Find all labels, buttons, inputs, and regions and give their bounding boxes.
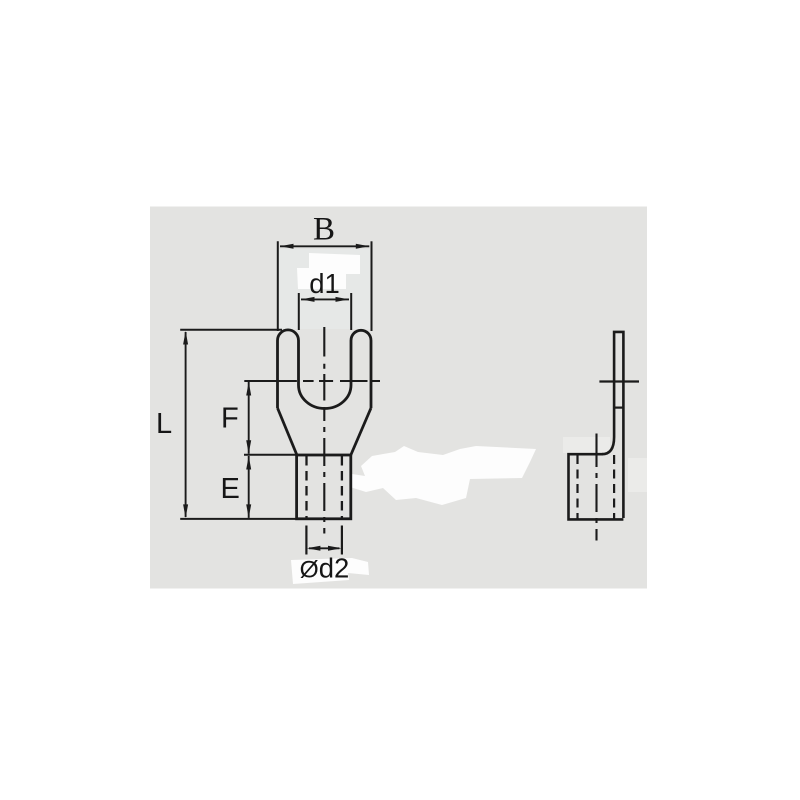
svg-text:B: B [313,212,335,248]
svg-text:F: F [221,403,239,435]
svg-text:E: E [221,473,240,505]
svg-text:Ød2: Ød2 [300,553,350,584]
svg-text:L: L [156,408,172,440]
svg-text:d1: d1 [309,268,340,299]
